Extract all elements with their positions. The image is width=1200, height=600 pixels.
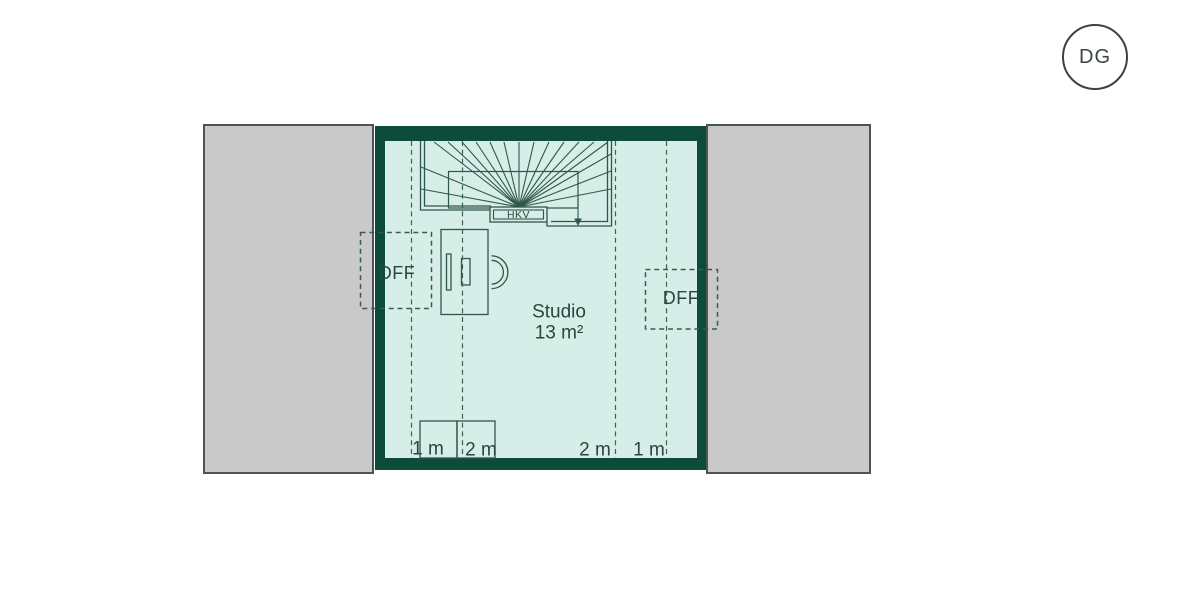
height-label-1m-right: 1 m	[633, 441, 665, 460]
stair-treads	[421, 142, 611, 207]
keyboard	[462, 259, 471, 286]
height-label-1m-left: 1 m	[412, 440, 444, 459]
attic-floor-plan: Studio 13 m² DFF DFF HKV 1 m 2 m 2 m 1 m…	[0, 0, 1200, 600]
room-name-label: Studio	[532, 303, 586, 322]
chair-inner-arc	[492, 260, 504, 284]
desk-group	[441, 230, 508, 315]
height-label-2m-right: 2 m	[579, 441, 611, 460]
height-label-2m-left: 2 m	[465, 441, 497, 460]
storey-badge: DG	[1062, 24, 1128, 90]
monitor	[447, 254, 452, 290]
hkv-label: HKV	[507, 210, 530, 221]
desk	[441, 230, 488, 315]
room-area-label: 13 m²	[535, 324, 584, 343]
storey-badge-label: DG	[1079, 46, 1111, 69]
roof-height-lines	[412, 141, 667, 458]
roof-window-right-label: DFF	[663, 289, 700, 307]
roof-window-left-label: DFF	[379, 264, 416, 282]
floor-plan-drawing	[0, 0, 1200, 600]
